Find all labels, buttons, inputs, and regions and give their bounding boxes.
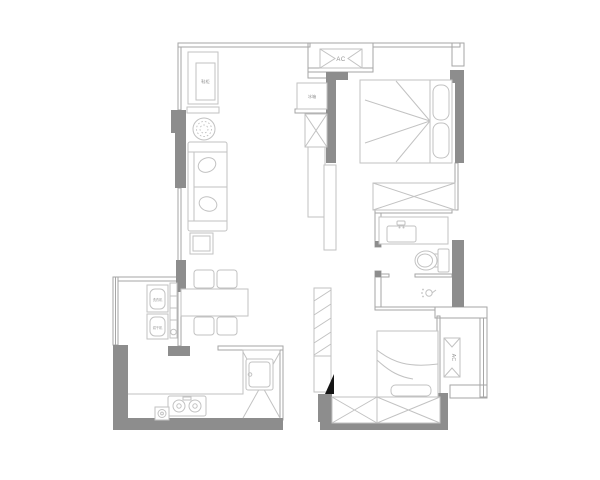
wall-bathroom-right xyxy=(452,240,464,307)
tall-cabinet xyxy=(308,147,325,217)
foyer: 鞋柜 xyxy=(187,52,219,140)
bathroom xyxy=(379,217,449,297)
utility-niche-top-wall xyxy=(118,277,178,281)
kitchen xyxy=(128,350,280,420)
ac-side-label: AC xyxy=(450,354,456,362)
wardrobe-2 xyxy=(332,397,440,423)
wall-kitchen-door-stub xyxy=(168,346,190,356)
ac-top-label: AC xyxy=(336,57,345,63)
shower-head-icon xyxy=(421,289,436,298)
bedroom1-top-wall xyxy=(373,43,460,47)
wall-kitchen-left xyxy=(113,345,128,425)
dining-chair-3 xyxy=(194,317,214,335)
toilet-icon xyxy=(415,249,449,272)
kitchen-right-wall xyxy=(280,350,283,420)
balcony-ledge-bottom xyxy=(450,385,487,398)
shoe-cabinet-label: 鞋柜 xyxy=(201,78,209,85)
fridge-shelf xyxy=(295,109,329,113)
hall-wall-cabinet xyxy=(324,165,336,250)
shelf-unit-hatched xyxy=(314,288,331,356)
shoe-cabinet xyxy=(188,52,218,104)
shower-bottom-wall xyxy=(375,307,435,310)
top-right-flue xyxy=(452,43,464,66)
balcony-ledge-top xyxy=(435,307,487,318)
pillow-2 xyxy=(391,385,431,396)
floor-plan-canvas: 鞋柜 洗衣机 烘干机 xyxy=(0,0,600,480)
wall-left-living xyxy=(171,110,186,188)
wall-cap-bath-lower xyxy=(375,271,381,277)
ac-unit-top: AC xyxy=(320,49,362,68)
bedroom-2 xyxy=(314,288,440,423)
dryer-label: 烘干机 xyxy=(153,325,163,330)
floor-drain-icon xyxy=(155,407,169,420)
entry-left-wall xyxy=(178,47,181,110)
hall-window-strip xyxy=(308,72,327,78)
balcony-top: AC xyxy=(320,49,362,68)
fridge-label: 冰箱 xyxy=(308,93,316,100)
utility-strip xyxy=(170,283,177,338)
stove-icon xyxy=(168,396,206,416)
wall-bedroom2-left-stub xyxy=(318,394,332,422)
entry-console xyxy=(187,107,219,113)
plant-icon xyxy=(193,118,215,140)
vanity xyxy=(379,217,448,244)
floor-plan-drawing: 鞋柜 洗衣机 烘干机 xyxy=(0,0,600,480)
dining-chair-4 xyxy=(217,317,237,335)
wall-hall-bedroom1 xyxy=(326,72,348,163)
kitchen-top-wall xyxy=(218,346,283,350)
dining-chair-1 xyxy=(194,270,214,288)
bedroom-1 xyxy=(360,80,455,210)
bathroom-divider-right xyxy=(415,274,452,277)
hall-cabinet-x xyxy=(305,114,327,147)
wardrobe-1 xyxy=(373,183,455,210)
living-area xyxy=(188,142,227,254)
pillow-1a xyxy=(433,85,449,120)
pillow-1b xyxy=(433,123,449,158)
balcony-side: AC xyxy=(444,338,460,377)
dining-area: 洗衣机 烘干机 xyxy=(147,270,248,339)
dining-table xyxy=(181,289,248,316)
kitchen-sink xyxy=(246,359,273,390)
ac-unit-side: AC xyxy=(444,338,460,377)
washer-label: 洗衣机 xyxy=(153,297,163,302)
dining-chair-2 xyxy=(217,270,237,288)
wall-kitchen-bottom xyxy=(113,418,283,430)
top-balcony-inner-wall xyxy=(308,68,373,72)
entry-top-wall xyxy=(178,43,310,47)
